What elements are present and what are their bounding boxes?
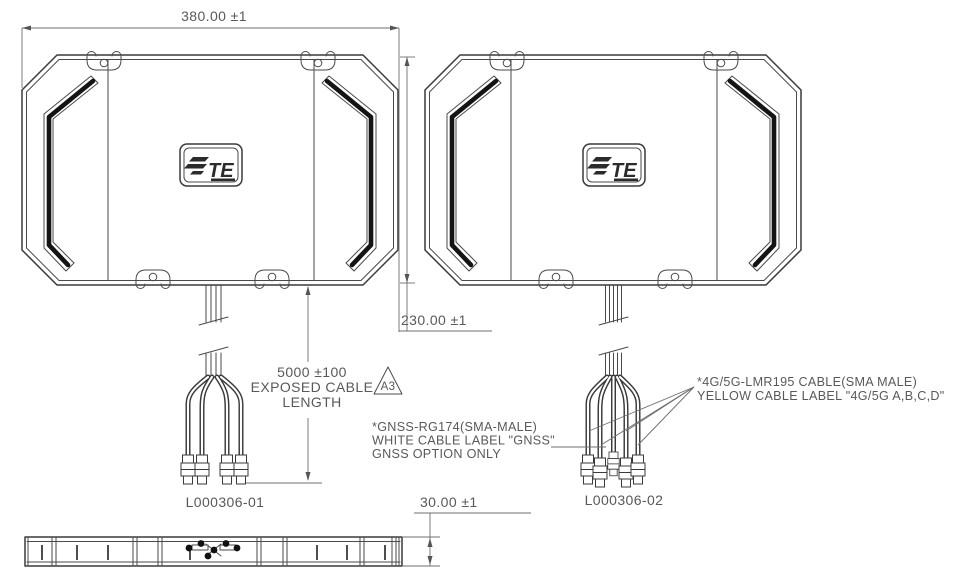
revision-flag-text: A3 xyxy=(381,381,396,393)
break-mark xyxy=(199,317,228,325)
note-gnss: *GNSS-RG174(SMA-MALE) WHITE CABLE LABEL … xyxy=(372,420,606,461)
gnss-note-line-1: *GNSS-RG174(SMA-MALE) xyxy=(372,420,537,434)
assembly-left: L000306-01 xyxy=(22,52,398,511)
dimension-thickness-text: 30.00 ±1 xyxy=(420,494,478,510)
note-cellular: *4G/5G-LMR195 CABLE(SMA MALE) YELLOW CAB… xyxy=(589,375,945,445)
sma-connector xyxy=(220,455,234,484)
sma-connector xyxy=(593,458,607,487)
sma-connector-gnss xyxy=(608,452,619,476)
cables-split xyxy=(188,377,241,456)
arrowhead-down xyxy=(306,472,311,481)
arrowhead-down xyxy=(405,274,410,283)
cable-bundle xyxy=(199,286,228,378)
sma-connector xyxy=(234,455,248,484)
antenna-top-view-left xyxy=(22,52,398,289)
arrowhead-right xyxy=(390,26,399,31)
antenna-drawing-canvas: TE xyxy=(0,0,961,584)
technical-drawing-page: TE xyxy=(0,0,961,584)
cable-bundle xyxy=(599,286,628,378)
arrowhead-up xyxy=(428,538,433,547)
arrowhead-up xyxy=(306,286,311,295)
revision-flag: A3 xyxy=(374,367,402,394)
side-profile-view xyxy=(25,537,402,566)
cable-harness-right xyxy=(581,286,645,488)
sma-connector xyxy=(181,455,195,484)
gnss-note-line-2: WHITE CABLE LABEL "GNSS" xyxy=(372,434,555,448)
arrowhead-down xyxy=(428,556,433,565)
sma-connector xyxy=(631,455,645,484)
gnss-note-line-3: GNSS OPTION ONLY xyxy=(372,447,501,461)
cellular-note-line-1: *4G/5G-LMR195 CABLE(SMA MALE) xyxy=(697,375,917,389)
antenna-top-view-right xyxy=(425,52,801,289)
dimension-cable-length: 5000 ±100 EXPOSED CABLE LENGTH xyxy=(246,286,373,483)
dimension-height-text: 230.00 ±1 xyxy=(401,312,467,328)
leader-lines xyxy=(589,387,694,445)
arrowhead-up xyxy=(405,57,410,66)
break-mark xyxy=(199,347,228,355)
cable-length-line-3: LENGTH xyxy=(282,394,341,410)
cable-harness-left xyxy=(181,286,248,485)
arrowhead-left xyxy=(22,26,31,31)
dimension-width-text: 380.00 ±1 xyxy=(181,8,247,24)
part-number-left: L000306-01 xyxy=(186,494,265,510)
cable-length-line-1: 5000 ±100 xyxy=(277,364,347,380)
part-number-right: L000306-02 xyxy=(585,492,664,508)
cellular-note-line-2: YELLOW CABLE LABEL "4G/5G A,B,C,D" xyxy=(697,389,945,403)
cable-length-line-2: EXPOSED CABLE xyxy=(251,379,374,395)
dimension-thickness: 30.00 ±1 xyxy=(403,494,531,566)
profile-connector-cluster xyxy=(186,540,241,559)
sma-connector xyxy=(195,455,209,484)
